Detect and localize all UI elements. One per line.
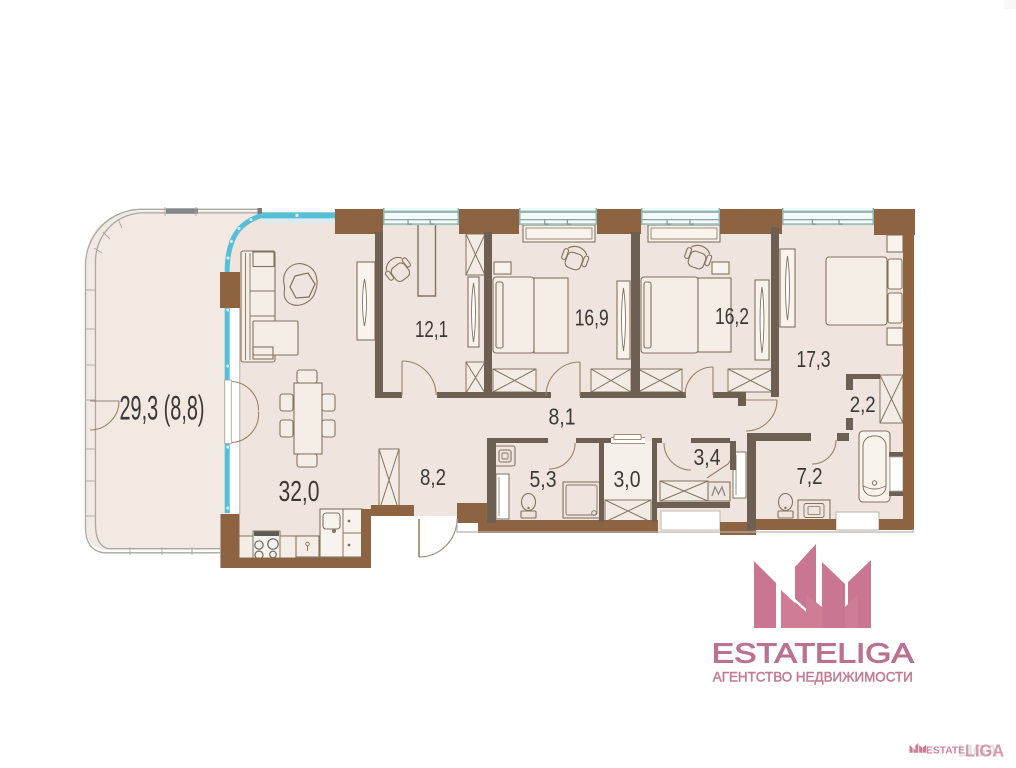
svg-text:8,2: 8,2 [420,464,446,490]
svg-text:32,0: 32,0 [279,476,320,508]
svg-text:LIGA: LIGA [965,741,1004,761]
svg-text:3,0: 3,0 [614,466,641,492]
svg-text:5,3: 5,3 [530,466,557,492]
svg-text:8,1: 8,1 [549,404,576,430]
svg-text:16,2: 16,2 [715,303,749,329]
svg-text:АГЕНТСТВО НЕДВИЖИМОСТИ: АГЕНТСТВО НЕДВИЖИМОСТИ [713,670,913,685]
svg-text:29,3 (8,8): 29,3 (8,8) [120,390,205,428]
svg-text:16,9: 16,9 [575,305,609,331]
svg-text:ESTATELIGA: ESTATELIGA [712,638,915,669]
svg-text:17,3: 17,3 [797,346,831,372]
svg-text:ESTATE: ESTATE [926,745,965,757]
svg-text:2,2: 2,2 [850,392,876,417]
svg-text:12,1: 12,1 [415,316,448,342]
svg-text:7,2: 7,2 [797,463,823,489]
svg-text:3,4: 3,4 [694,444,721,470]
